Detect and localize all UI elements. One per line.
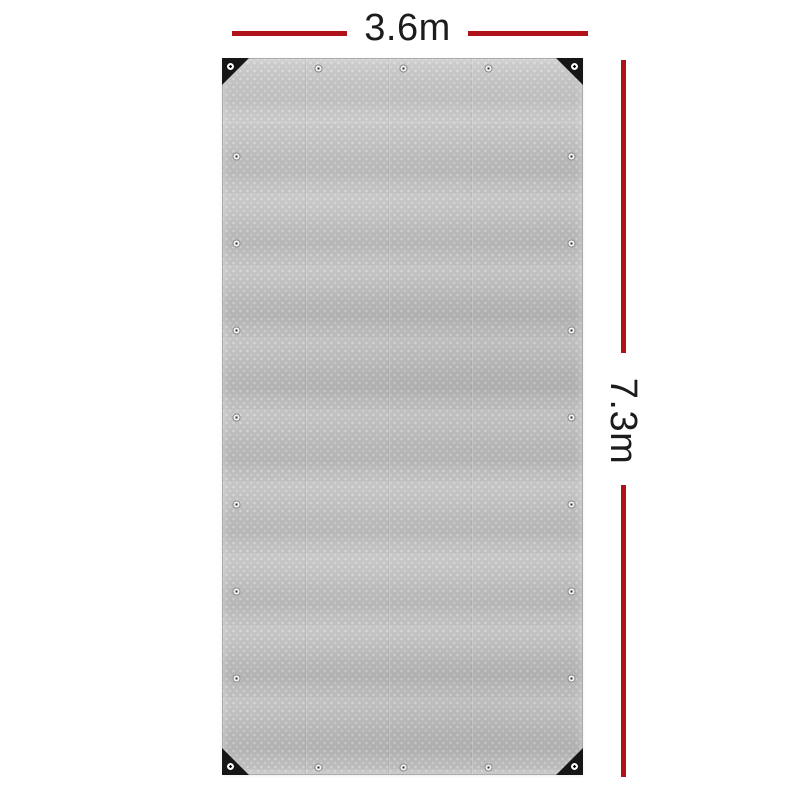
corner-patch-top-left xyxy=(222,58,249,85)
tarpaulin xyxy=(222,58,583,775)
height-dimension-label: 7.3m xyxy=(603,361,643,481)
grommet xyxy=(232,500,241,509)
width-dimension-label: 3.6m xyxy=(347,8,468,48)
grommet xyxy=(567,674,576,683)
grommet xyxy=(226,62,235,71)
grommet xyxy=(567,152,576,161)
grommet xyxy=(232,239,241,248)
grommet xyxy=(232,413,241,422)
grommet xyxy=(570,62,579,71)
grommet xyxy=(567,326,576,335)
product-dimension-diagram: 3.6m 7.3m xyxy=(0,0,800,800)
grommet xyxy=(314,763,323,772)
grommet xyxy=(232,587,241,596)
grommet xyxy=(399,64,408,73)
fabric-seam xyxy=(471,59,472,774)
grommet xyxy=(232,674,241,683)
fabric-seam xyxy=(305,59,306,774)
grommet xyxy=(567,239,576,248)
width-dimension-line-left xyxy=(232,31,347,36)
grommet xyxy=(399,763,408,772)
fabric-seam xyxy=(388,59,389,774)
height-dimension-line-upper xyxy=(621,60,626,353)
width-dimension-line-right xyxy=(468,31,588,36)
height-dimension-line-lower xyxy=(621,485,626,777)
grommet xyxy=(484,763,493,772)
corner-patch-top-right xyxy=(556,58,583,85)
grommet xyxy=(226,762,235,771)
grommet xyxy=(484,64,493,73)
corner-patch-bottom-right xyxy=(556,748,583,775)
grommet xyxy=(232,152,241,161)
grommet xyxy=(567,587,576,596)
grommet xyxy=(567,500,576,509)
grommet xyxy=(232,326,241,335)
grommet xyxy=(570,762,579,771)
corner-patch-bottom-left xyxy=(222,748,249,775)
grommet xyxy=(567,413,576,422)
grommet xyxy=(314,64,323,73)
